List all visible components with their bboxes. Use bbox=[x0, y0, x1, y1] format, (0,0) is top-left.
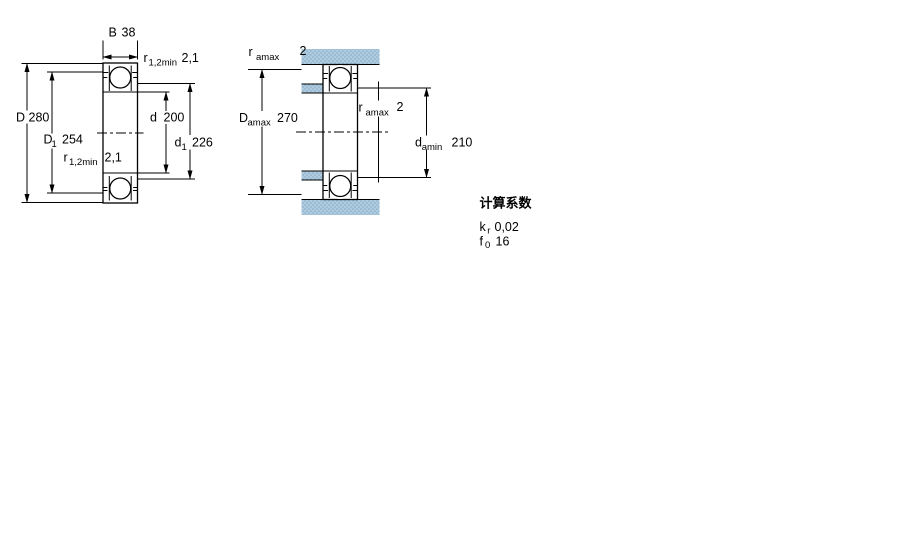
label-fillet-radius-top: r 1,2min 2,1 bbox=[144, 51, 199, 69]
r-symbol: r bbox=[249, 45, 253, 59]
ball-bottom bbox=[110, 178, 131, 199]
factor-value: 16 bbox=[496, 235, 510, 249]
dim-B-symbol: B bbox=[109, 26, 117, 40]
dim-width-B: B 38 bbox=[103, 26, 138, 60]
r-subscript: amax bbox=[366, 108, 389, 119]
r-value: 2 bbox=[300, 44, 307, 58]
dim-D-symbol: D bbox=[16, 111, 25, 125]
ball-top bbox=[110, 67, 131, 88]
dim-D1-subscript: 1 bbox=[52, 139, 57, 150]
r-symbol: r bbox=[359, 101, 363, 115]
dim-bore-diameter-d: d 200 bbox=[138, 92, 185, 173]
factor-subscript: 0 bbox=[485, 240, 490, 251]
bearing-drawing-page: B 38 D 280 D 1 254 d bbox=[0, 0, 900, 560]
shaft-shoulder-top bbox=[302, 84, 324, 93]
left-cross-section-view: B 38 D 280 D 1 254 d bbox=[14, 26, 215, 204]
housing-section-top bbox=[302, 49, 380, 65]
dim-Damax-value: 270 bbox=[277, 111, 298, 125]
dim-shoulder-diameter-d1: d 1 226 bbox=[138, 84, 215, 180]
ball-top bbox=[330, 68, 351, 89]
dim-B-value: 38 bbox=[122, 26, 136, 40]
factors-title: 计算系数 bbox=[480, 196, 533, 211]
factor-value: 0,02 bbox=[495, 220, 519, 234]
dim-d1-value: 226 bbox=[192, 136, 213, 150]
factor-row-f0: f 0 16 bbox=[480, 235, 510, 252]
label-housing-fillet-ramax-top: r amax 2 bbox=[249, 44, 307, 63]
dim-damin-value: 210 bbox=[452, 136, 473, 150]
right-mounting-view: D amax 270 d amin 210 r amax 2 r amax 2 bbox=[237, 44, 472, 215]
r-value: 2 bbox=[397, 100, 404, 114]
shaft-shoulder-bottom bbox=[302, 171, 324, 180]
dim-D-value: 280 bbox=[29, 111, 50, 125]
r-symbol: r bbox=[144, 51, 148, 65]
dim-D1-value: 254 bbox=[62, 133, 83, 147]
dim-shoulder-diameter-D1: D 1 254 bbox=[41, 72, 103, 193]
calculation-factors: 计算系数 k r 0,02 f 0 16 bbox=[480, 196, 533, 252]
dim-Damax-subscript: amax bbox=[248, 118, 271, 129]
r-subscript: 1,2min bbox=[69, 157, 98, 168]
dim-damin-subscript: amin bbox=[422, 142, 443, 153]
factor-subscript: r bbox=[487, 226, 490, 237]
dim-d1-symbol: d bbox=[175, 136, 182, 150]
dim-d-symbol: d bbox=[150, 111, 157, 125]
r-value: 2,1 bbox=[105, 151, 122, 165]
r-subscript: amax bbox=[256, 52, 279, 63]
dim-d1-subscript: 1 bbox=[182, 142, 187, 153]
bearing-dimension-drawing: B 38 D 280 D 1 254 d bbox=[0, 0, 900, 560]
factor-symbol: k bbox=[480, 220, 487, 234]
r-symbol: r bbox=[64, 151, 68, 165]
ball-bottom bbox=[330, 176, 351, 197]
dim-d-value: 200 bbox=[164, 111, 185, 125]
dim-outer-diameter-D: D 280 bbox=[14, 64, 103, 203]
dim-housing-shoulder-Damax: D amax 270 bbox=[237, 70, 302, 195]
label-shaft-fillet-ramax-mid: r amax 2 bbox=[359, 100, 404, 119]
factor-symbol: f bbox=[480, 235, 484, 249]
housing-section-bottom bbox=[302, 200, 380, 216]
r-value: 2,1 bbox=[182, 51, 199, 65]
r-subscript: 1,2min bbox=[149, 58, 178, 69]
